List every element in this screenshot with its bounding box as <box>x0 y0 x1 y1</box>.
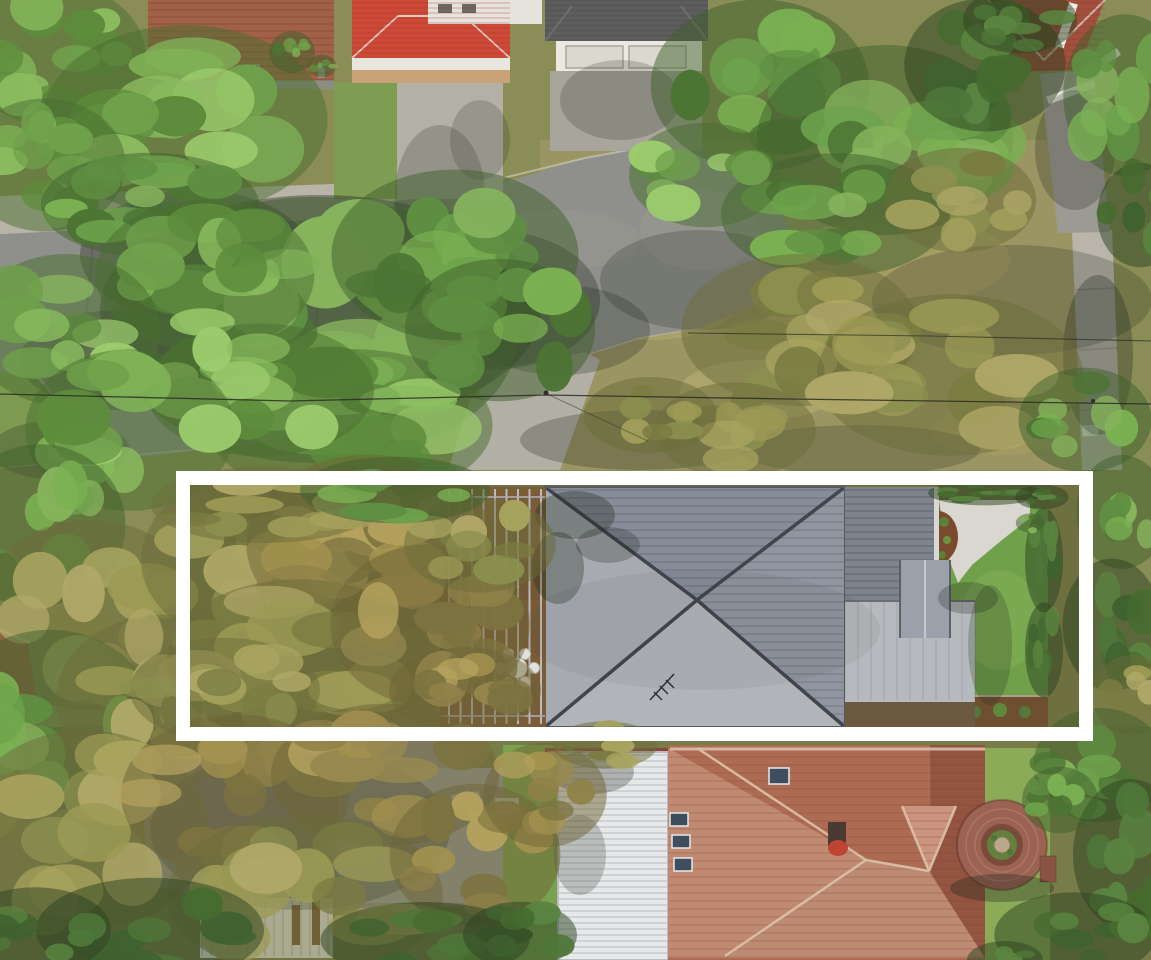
tree-cluster <box>1015 485 1068 510</box>
shrub <box>938 551 946 559</box>
shrub <box>1019 706 1031 718</box>
tree-cluster <box>584 377 717 453</box>
tree-cluster <box>300 457 490 524</box>
skylight <box>769 768 789 784</box>
shadow <box>520 570 880 690</box>
shrub <box>943 536 951 544</box>
tree-cluster <box>1022 767 1098 834</box>
red-tile-roof <box>668 745 985 960</box>
brick-pillar <box>1040 856 1056 882</box>
skylight <box>674 858 692 871</box>
power-pole <box>1091 399 1095 403</box>
aerial-photo-canvas <box>0 0 1151 960</box>
shrub <box>993 703 1007 717</box>
aerial-photo <box>0 0 1151 960</box>
skylight <box>672 835 690 848</box>
porch-paving <box>352 70 510 83</box>
shrub <box>939 517 949 527</box>
rear-strip <box>845 702 975 727</box>
tree-cluster <box>405 259 595 402</box>
front-lawn-strip <box>334 83 397 199</box>
tree-cluster <box>629 123 782 228</box>
shadow <box>576 527 640 563</box>
tree-cluster <box>884 148 1036 253</box>
skylight <box>670 813 688 826</box>
plant <box>1007 849 1013 855</box>
shadow <box>938 582 998 614</box>
shadow <box>450 100 510 180</box>
power-pole <box>544 391 549 396</box>
tree-cluster <box>1025 603 1063 698</box>
plant <box>991 835 997 841</box>
white-wall <box>352 58 510 71</box>
chimney-cap <box>828 840 848 856</box>
